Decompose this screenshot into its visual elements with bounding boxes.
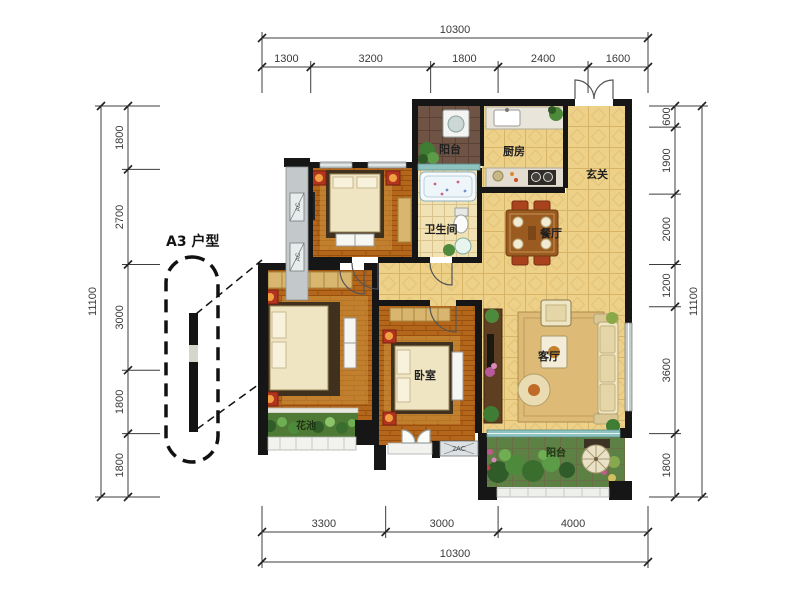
room-label-balcony-bottom: 阳台 [546,446,566,459]
svg-text:3600: 3600 [661,358,673,382]
umbrella-icon [582,445,610,473]
svg-text:1300: 1300 [274,53,298,65]
unit-title: A3 户型 [166,233,219,250]
ac-label: AC [295,252,302,261]
centerpiece [528,226,536,240]
plate [513,239,523,249]
svg-text:1800: 1800 [661,453,673,477]
svg-text:1900: 1900 [661,148,673,172]
kitchen-sink [494,110,520,126]
room-label-living: 客厅 [537,349,560,363]
bench [452,352,463,400]
svg-text:1800: 1800 [114,390,126,414]
svg-text:2400: 2400 [531,53,555,65]
svg-text:10300: 10300 [440,548,471,560]
plate [541,239,551,249]
svg-text:3000: 3000 [430,518,454,530]
pillow [357,177,377,188]
pillow [272,312,286,338]
plant-icon [606,312,618,324]
hall-floor [378,263,482,306]
svg-text:4000: 4000 [561,518,585,530]
floorplan-drawing: AC AC 2AC 阳台 厨房 玄关 卫生间 餐厅 客厅 卧室 花池 阳台 A3… [0,0,800,600]
svg-text:11100: 11100 [87,287,99,316]
entry-door-leaf [594,80,613,99]
dresser [390,308,450,321]
lamp [389,174,397,182]
room-label-flower-bed: 花池 [296,419,316,432]
unit-position-highlight [189,345,198,362]
svg-text:3200: 3200 [358,53,382,65]
unit-position-bar [189,313,198,432]
shrub [522,460,544,482]
pillow [272,342,286,368]
svg-text:1800: 1800 [114,125,126,149]
round-rug-center [528,384,540,396]
svg-text:1200: 1200 [661,273,673,297]
room-label-bathroom: 卫生间 [425,222,458,236]
armchair-cushion [546,305,566,321]
svg-text:2000: 2000 [661,217,673,241]
plate [513,217,523,227]
burner [532,173,541,182]
plant-icon [483,406,499,422]
sofa-cushion [600,326,615,353]
svg-text:3000: 3000 [114,305,126,329]
svg-text:1600: 1600 [606,53,630,65]
plate [541,217,551,227]
sofa-cushion [600,355,615,382]
room-label-balcony-top: 阳台 [439,142,461,156]
pillow [397,350,410,374]
ac-platform-left [286,167,308,300]
callout-line [196,260,262,314]
burner [544,173,553,182]
window [497,488,609,497]
dresser [398,198,411,242]
washer-door [448,116,464,132]
svg-text:1800: 1800 [114,453,126,477]
svg-text:1800: 1800 [452,53,476,65]
svg-text:3300: 3300 [312,518,336,530]
entry-door-leaf [575,80,594,99]
svg-text:11100: 11100 [688,287,700,316]
ac-label: AC [295,202,302,211]
room-label-kitchen: 厨房 [503,144,525,158]
svg-text:600: 600 [661,107,673,125]
plant-icon [443,244,455,256]
shrub [559,462,575,478]
sink [455,238,471,254]
svg-text:2700: 2700 [114,205,126,229]
flowers [487,449,493,455]
lamp [385,414,393,422]
ac-label: 2AC [452,446,466,453]
callout-line [197,382,262,429]
room-label-entry: 玄关 [586,167,608,181]
unit-callout: A3 户型 [166,233,262,462]
window [388,443,432,454]
lamp [315,174,323,182]
window [418,164,480,170]
room-label-bedroom: 卧室 [414,368,436,382]
svg-text:10300: 10300 [440,24,471,36]
floorplan-page: AC AC 2AC 阳台 厨房 玄关 卫生间 餐厅 客厅 卧室 花池 阳台 A3… [0,0,800,600]
room-label-dining: 餐厅 [539,226,562,240]
pillow [333,177,353,188]
pillow [397,378,410,402]
sofa-cushion [600,384,615,411]
lamp [385,332,393,340]
plant-icon [485,309,499,323]
bathtub-inner [424,176,472,197]
